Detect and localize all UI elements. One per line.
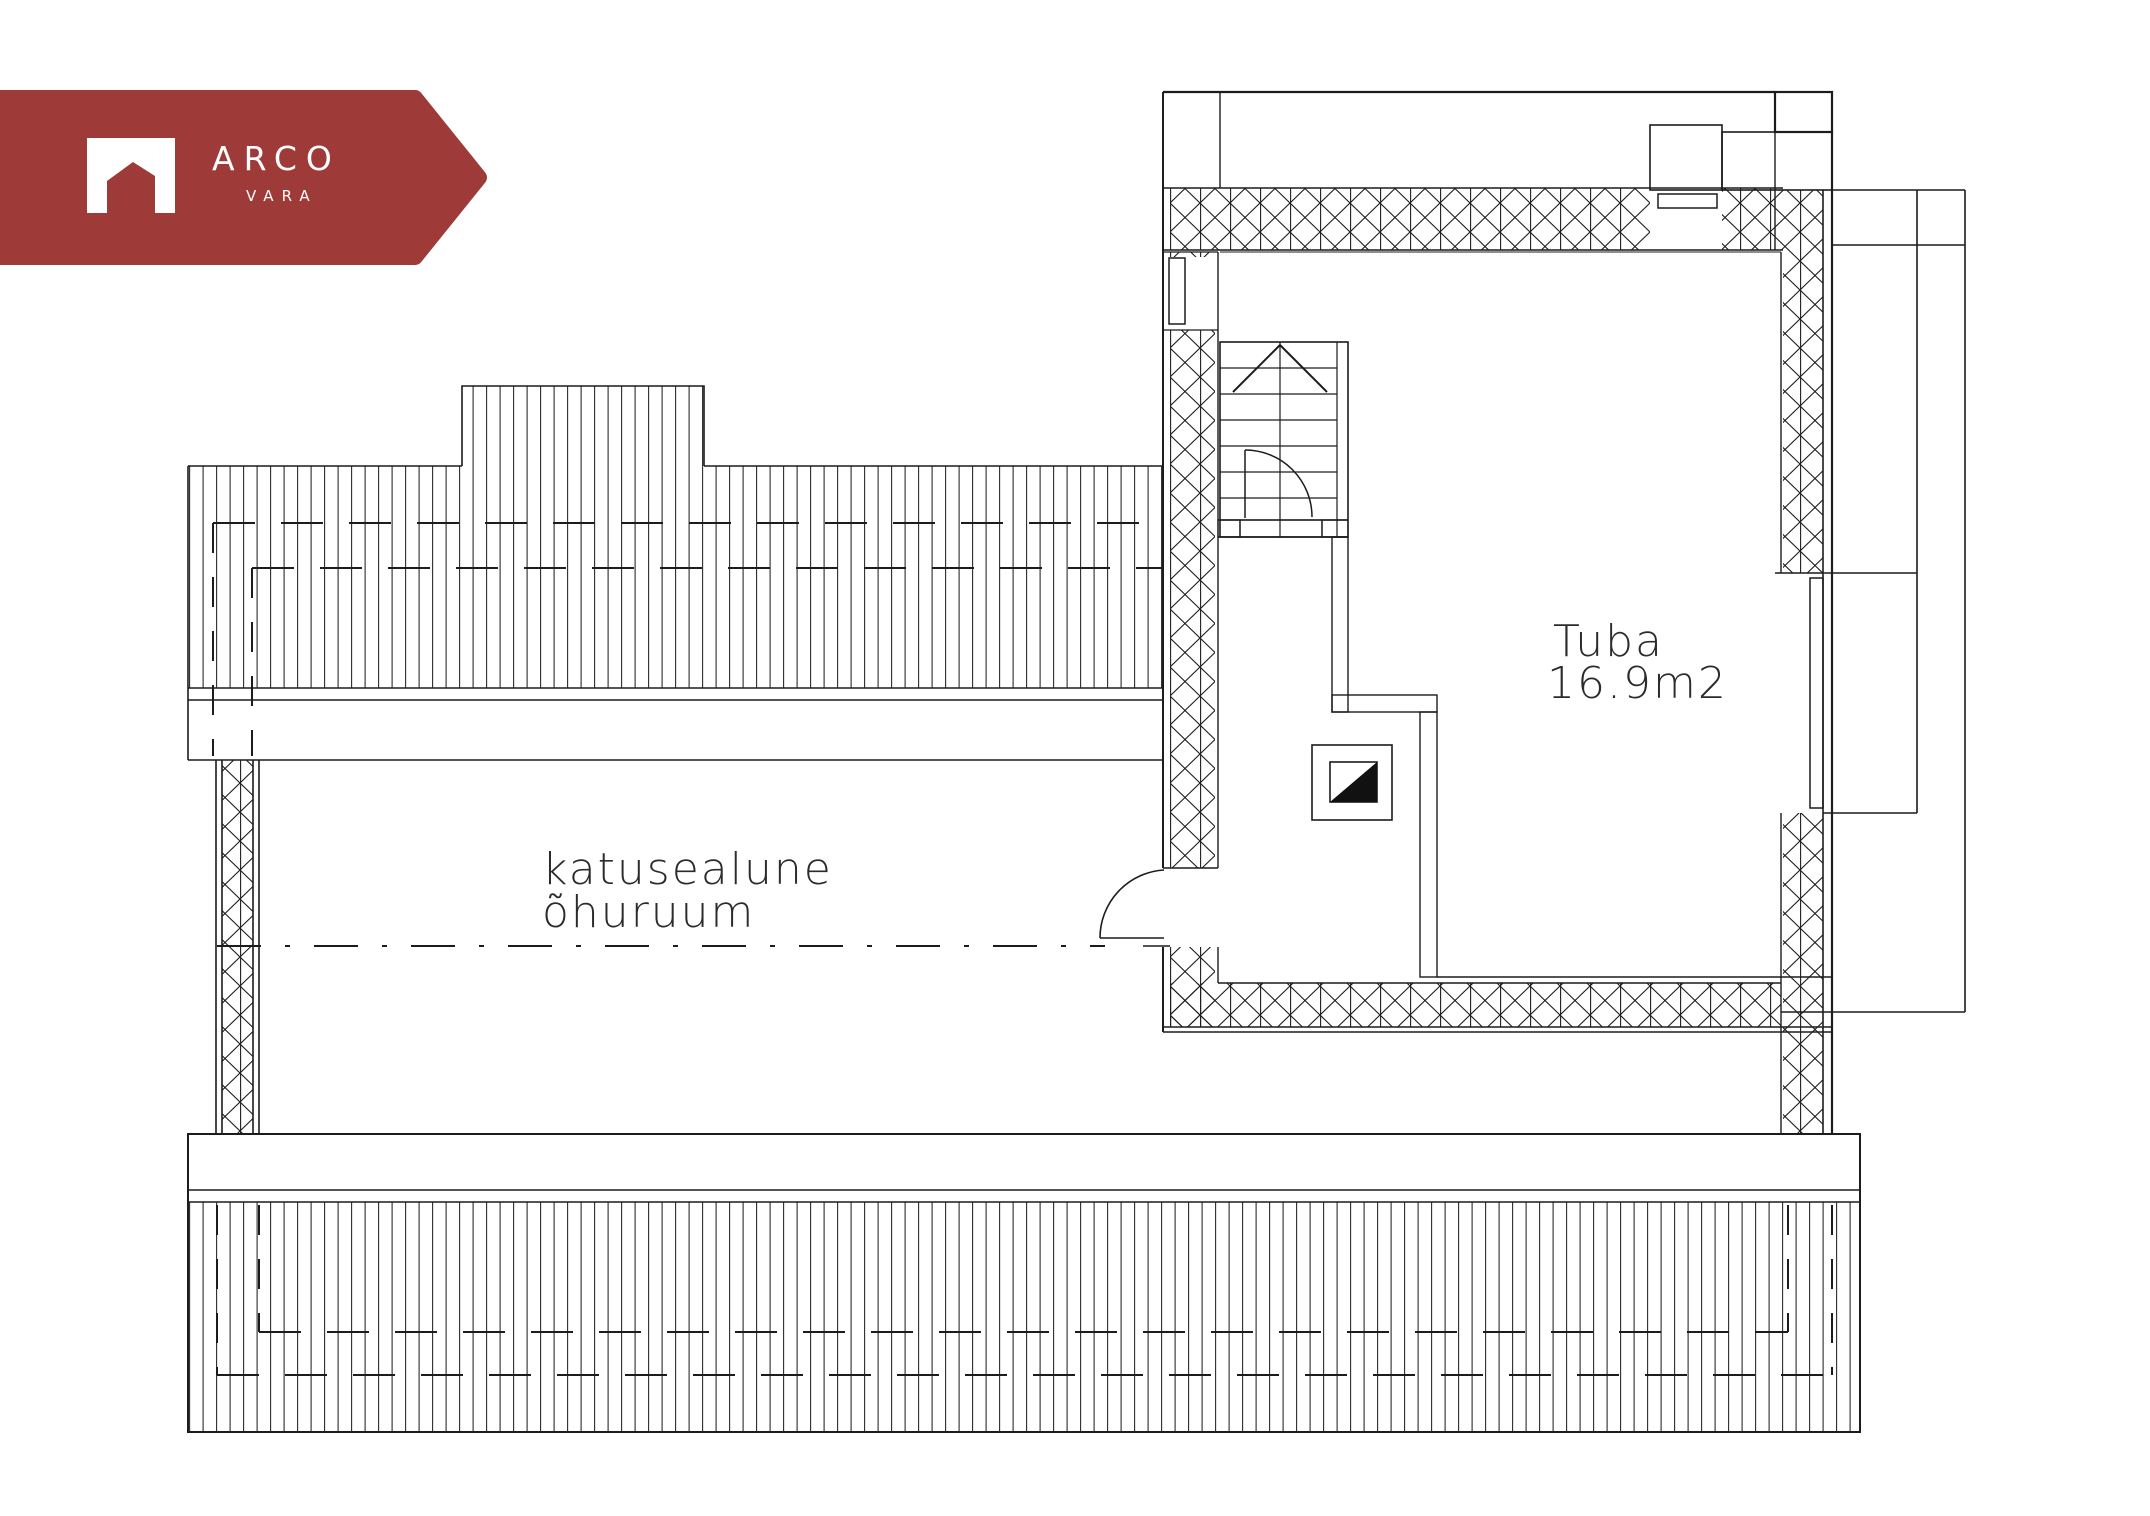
right-wall — [1775, 190, 1917, 1133]
logo-badge: ARCO VARA — [0, 98, 479, 257]
flue-triangle — [1330, 762, 1377, 802]
right-wall-window — [1810, 578, 1823, 808]
brand-subname: VARA — [246, 187, 318, 205]
door-stairs — [1245, 450, 1312, 518]
door-swing-arc — [1245, 450, 1312, 517]
roof-area-lower — [188, 1134, 1860, 1432]
top-wall — [1163, 125, 1832, 252]
roof-area-upper — [188, 386, 1163, 760]
house-icon — [87, 138, 175, 213]
roof-corner-block — [1775, 92, 1832, 132]
interior-partition — [1332, 537, 1437, 977]
chimney-block — [1650, 125, 1722, 190]
attic-label-line2: õhuruum — [542, 887, 755, 938]
left-wall-window — [1169, 258, 1185, 324]
floor-plan-canvas: Tuba 16.9m2 katusealune õhuruum ARCO VAR… — [0, 0, 2150, 1516]
bottom-wall — [1170, 977, 1781, 1027]
chimney-block — [1722, 132, 1832, 190]
door-left — [1100, 870, 1164, 938]
chimney-symbol — [1312, 745, 1392, 820]
staircase — [1218, 342, 1348, 537]
door-swing-arc — [1100, 870, 1164, 938]
top-wall-window-gap — [1651, 189, 1721, 249]
floor-plan-page: Tuba 16.9m2 katusealune õhuruum ARCO VAR… — [0, 0, 2150, 1516]
brand-name: ARCO — [212, 139, 341, 178]
room-area-label: 16.9m2 — [1547, 658, 1728, 709]
